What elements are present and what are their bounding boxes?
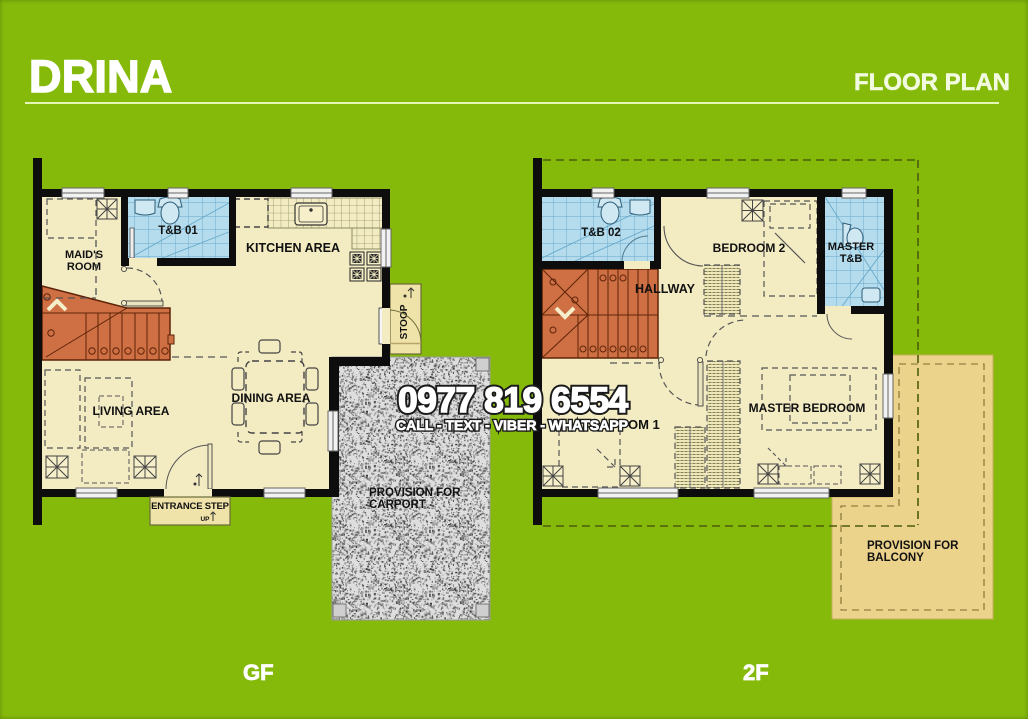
svg-text:STOOP: STOOP [399,304,410,339]
svg-text:0977 819 6554: 0977 819 6554 [398,381,629,420]
svg-text:T&B 02: T&B 02 [581,227,621,239]
svg-text:T&B 01: T&B 01 [158,225,198,237]
svg-text:T&B: T&B [840,253,863,265]
svg-text:MASTER BEDROOM: MASTER BEDROOM [749,401,866,415]
svg-text:CARPORT: CARPORT [369,499,426,511]
svg-text:HALLWAY: HALLWAY [635,282,696,296]
svg-text:PROVISION FOR: PROVISION FOR [867,540,959,552]
svg-text:UP: UP [200,516,210,523]
svg-text:LIVING AREA: LIVING AREA [93,404,170,418]
svg-text:MASTER: MASTER [828,241,875,253]
svg-text:BEDROOM 2: BEDROOM 2 [713,241,786,255]
svg-text:DINING AREA: DINING AREA [232,391,311,405]
svg-text:PROVISION FOR: PROVISION FOR [369,487,461,499]
svg-text:ENTRANCE STEP: ENTRANCE STEP [151,501,229,512]
svg-text:CALL - TEXT - VIBER - WHATSAPP: CALL - TEXT - VIBER - WHATSAPP [396,417,628,433]
svg-text:OM 1: OM 1 [628,417,660,432]
svg-text:BALCONY: BALCONY [867,552,924,564]
svg-text:MAID'S: MAID'S [65,249,103,261]
svg-text:KITCHEN AREA: KITCHEN AREA [246,241,340,255]
